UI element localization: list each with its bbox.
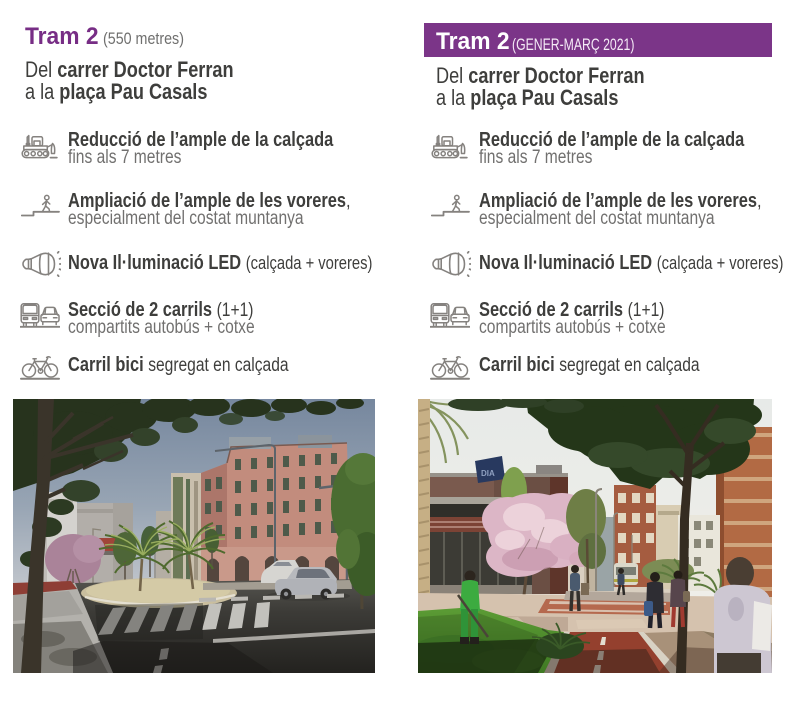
svg-text:DIA: DIA: [481, 469, 495, 478]
